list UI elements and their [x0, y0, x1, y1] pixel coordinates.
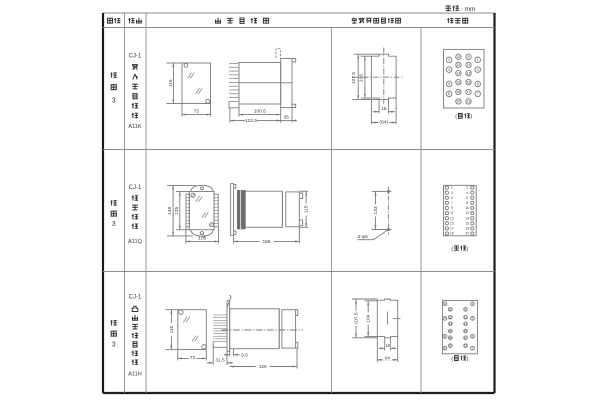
svg-text:): ) [471, 114, 473, 120]
svg-text:20: 20 [449, 344, 453, 348]
svg-text:20: 20 [465, 232, 469, 236]
svg-text:115: 115 [168, 79, 174, 87]
svg-text:16: 16 [465, 221, 469, 225]
svg-text:31.5: 31.5 [215, 357, 225, 363]
svg-text:104: 104 [366, 314, 372, 322]
svg-text:9: 9 [451, 206, 453, 210]
svg-text:13: 13 [464, 322, 468, 326]
svg-text:CJ-1: CJ-1 [129, 294, 142, 300]
svg-text:12: 12 [449, 315, 453, 319]
svg-text:(64): (64) [380, 119, 389, 125]
svg-text:20: 20 [457, 100, 461, 104]
svg-text:13: 13 [467, 71, 471, 75]
svg-text:mm: mm [465, 6, 476, 13]
svg-text:CJ-1: CJ-1 [129, 54, 142, 60]
svg-text:10: 10 [449, 308, 453, 312]
svg-text:16: 16 [457, 80, 461, 84]
svg-text:35: 35 [284, 114, 290, 120]
svg-text:): ) [467, 356, 469, 362]
svg-text:4: 4 [448, 68, 450, 72]
svg-text:6: 6 [466, 196, 468, 200]
svg-text:14: 14 [457, 71, 461, 75]
svg-text:156: 156 [262, 239, 270, 245]
svg-text:(: ( [451, 356, 453, 362]
svg-text:10: 10 [457, 55, 461, 59]
svg-text:12: 12 [465, 211, 469, 215]
svg-text:1: 1 [477, 58, 479, 62]
svg-text:11: 11 [467, 63, 471, 67]
svg-text:7: 7 [451, 201, 453, 205]
svg-text:9.5: 9.5 [241, 352, 248, 358]
svg-text:11: 11 [464, 315, 467, 319]
svg-text:14: 14 [465, 216, 469, 220]
svg-text:3: 3 [112, 221, 116, 228]
svg-text:(: ( [455, 114, 457, 120]
svg-text:6: 6 [448, 82, 450, 86]
svg-text:19: 19 [450, 232, 454, 236]
svg-text:(: ( [451, 246, 453, 252]
svg-text:16: 16 [381, 106, 387, 112]
svg-text:107.5: 107.5 [354, 312, 360, 324]
svg-text:100.5: 100.5 [254, 108, 266, 114]
svg-text:12: 12 [457, 63, 461, 67]
svg-text:11: 11 [450, 211, 454, 215]
svg-text:A11H: A11H [128, 372, 142, 378]
svg-text:3: 3 [451, 191, 453, 195]
svg-text:2: 2 [466, 186, 468, 190]
svg-text:18: 18 [465, 227, 469, 231]
svg-text:10: 10 [465, 206, 469, 210]
svg-text:4: 4 [466, 191, 468, 195]
svg-text:105: 105 [358, 74, 364, 82]
svg-text:7: 7 [477, 92, 479, 96]
svg-text:16: 16 [449, 329, 453, 333]
svg-text:15: 15 [450, 221, 454, 225]
svg-text:2: 2 [448, 58, 450, 62]
svg-text:133: 133 [373, 206, 379, 214]
svg-text:115: 115 [169, 325, 175, 333]
svg-text:19: 19 [464, 344, 468, 348]
svg-text:3: 3 [112, 98, 116, 105]
svg-text:107.5: 107.5 [351, 72, 357, 84]
svg-text:149: 149 [167, 206, 173, 214]
svg-text:2-φ5: 2-φ5 [358, 234, 368, 240]
svg-text:16: 16 [385, 343, 391, 348]
svg-text:3: 3 [112, 342, 116, 349]
svg-text:8: 8 [466, 201, 468, 205]
svg-text:A11K: A11K [128, 124, 142, 130]
svg-text:15: 15 [464, 329, 468, 333]
svg-text:8: 8 [448, 92, 450, 96]
svg-text:A11Q: A11Q [128, 239, 143, 245]
svg-text:18: 18 [449, 336, 453, 340]
svg-text:18: 18 [457, 90, 461, 94]
svg-text:): ) [467, 246, 469, 252]
svg-text:14: 14 [449, 322, 453, 326]
svg-text:64: 64 [385, 355, 391, 361]
svg-text:9: 9 [468, 55, 470, 59]
svg-text:122.5: 122.5 [245, 118, 257, 124]
svg-text:126: 126 [259, 364, 267, 370]
svg-text:125: 125 [174, 206, 180, 214]
svg-text:5: 5 [477, 82, 479, 86]
svg-text:115: 115 [304, 205, 310, 213]
svg-text:1: 1 [451, 186, 453, 190]
svg-text:3: 3 [477, 68, 479, 72]
svg-text:19: 19 [467, 100, 471, 104]
svg-text:17: 17 [467, 90, 471, 94]
svg-text:105: 105 [198, 235, 206, 241]
svg-text:72: 72 [194, 109, 200, 115]
svg-text:17: 17 [450, 227, 454, 231]
svg-text:72: 72 [190, 355, 196, 361]
svg-text:CJ-1: CJ-1 [129, 185, 142, 191]
svg-text:5: 5 [451, 196, 453, 200]
svg-text:13: 13 [450, 216, 454, 220]
svg-text:15: 15 [467, 80, 471, 84]
svg-text:17: 17 [464, 336, 468, 340]
